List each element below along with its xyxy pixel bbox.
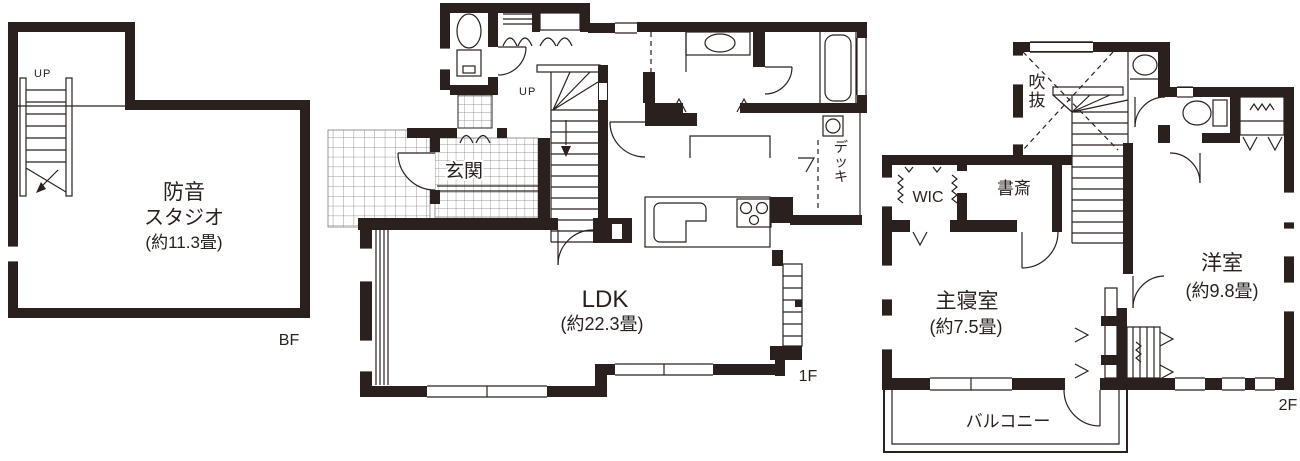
toilet-fixture xyxy=(457,14,481,76)
bathtub-fixture xyxy=(820,30,856,106)
washbasin-fixture xyxy=(686,32,750,72)
bf-studio-room-label: 防音 スタジオ (約11.3畳) xyxy=(144,181,224,252)
f2-toilet-fixture xyxy=(1183,100,1227,126)
entrance-label: 玄関 xyxy=(445,160,483,182)
ldk-door xyxy=(558,230,593,265)
study-label: 書斎 xyxy=(997,179,1031,198)
hanger-icon xyxy=(905,167,941,172)
closet-door-icon xyxy=(1268,137,1282,150)
outdoor-faucet-icon xyxy=(826,119,840,133)
ldk-west-shutter-lines xyxy=(376,230,388,385)
bf-stair-up-label: UP xyxy=(34,68,51,80)
closet-door-icon xyxy=(1075,364,1088,378)
deck-label: デッキ xyxy=(834,139,848,184)
closet-door-icon xyxy=(503,38,532,46)
balcony-area: バルコニー xyxy=(884,390,1127,452)
f1-floor-plan: UP xyxy=(328,3,867,397)
floorplan-canvas: UP 防音 スタジオ (約11.3畳) BF xyxy=(0,0,1300,461)
f2-washbasin-fixture xyxy=(1130,55,1160,79)
void-area: 吹抜 xyxy=(1023,52,1118,150)
f2-staircase xyxy=(1053,52,1128,243)
ldk-size-label: (約22.3畳) xyxy=(560,314,643,334)
floorplan-page: UP 防音 スタジオ (約11.3畳) BF xyxy=(0,0,1300,461)
washroom-folding-door-icon xyxy=(672,99,751,112)
bf-floor-plan: UP 防音 スタジオ (約11.3畳) BF xyxy=(8,22,310,349)
deck-area: デッキ xyxy=(798,113,860,215)
studio-label-line2: スタジオ xyxy=(144,206,224,229)
toilet-door xyxy=(498,47,526,75)
hanger-rod-icon xyxy=(898,175,903,203)
hall-door xyxy=(610,122,645,157)
bath-door xyxy=(765,67,792,94)
western-room-size: (約9.8畳) xyxy=(1185,281,1258,301)
wic-label: WIC xyxy=(912,189,943,206)
balcony-label: バルコニー xyxy=(966,412,1051,431)
closet-door-icon xyxy=(540,38,572,46)
closet-door-icon xyxy=(1160,365,1173,379)
ldk-east-bay xyxy=(783,264,802,346)
stair-arrow-icon xyxy=(561,146,571,157)
master-bedroom-door xyxy=(1022,232,1058,268)
stove-fixture xyxy=(737,199,771,227)
bf-staircase: UP xyxy=(20,68,72,196)
bf-floor-tag: BF xyxy=(279,332,300,349)
deck-door-icon xyxy=(798,158,814,172)
kitchen-counter xyxy=(645,197,771,247)
studio-label-line1: 防音 xyxy=(163,181,205,204)
f2-floor-plan: 吹抜 xyxy=(882,42,1298,452)
studio-size-label: (約11.3畳) xyxy=(145,233,222,252)
master-bedroom-size: (約7.5畳) xyxy=(929,317,1002,337)
western-room-door2 xyxy=(1133,276,1164,308)
hanger-rod-icon xyxy=(1250,104,1274,110)
void-label: 吹抜 xyxy=(1029,73,1046,110)
wic-interior xyxy=(898,167,957,245)
shoe-closet xyxy=(458,95,492,128)
f1-stair-up-label: UP xyxy=(519,86,536,98)
f2-walls xyxy=(882,42,1294,390)
f2-hall-closet xyxy=(1240,97,1284,150)
bf-walls xyxy=(8,22,310,318)
fridge-alcove xyxy=(690,136,770,158)
ldk-label: LDK xyxy=(582,286,629,313)
hanger-rod-icon xyxy=(952,175,957,203)
closet-door-icon xyxy=(913,232,927,245)
f1-walls xyxy=(358,3,867,397)
f2-toilet-door xyxy=(1135,97,1165,127)
f1-floor-tag: 1F xyxy=(799,368,818,385)
balcony-door xyxy=(1064,390,1100,426)
closet-door-icon xyxy=(1075,328,1088,342)
master-bedroom-label: 主寝室 xyxy=(936,290,999,313)
f2-floor-tag: 2F xyxy=(1279,397,1298,414)
western-room-door xyxy=(1170,153,1200,183)
closet-door-icon xyxy=(1160,332,1173,346)
kitchen-sink xyxy=(654,203,706,242)
f2-doors xyxy=(1022,97,1200,426)
closet-door-icon xyxy=(1243,137,1257,150)
western-room-label: 洋室 xyxy=(1201,252,1243,275)
